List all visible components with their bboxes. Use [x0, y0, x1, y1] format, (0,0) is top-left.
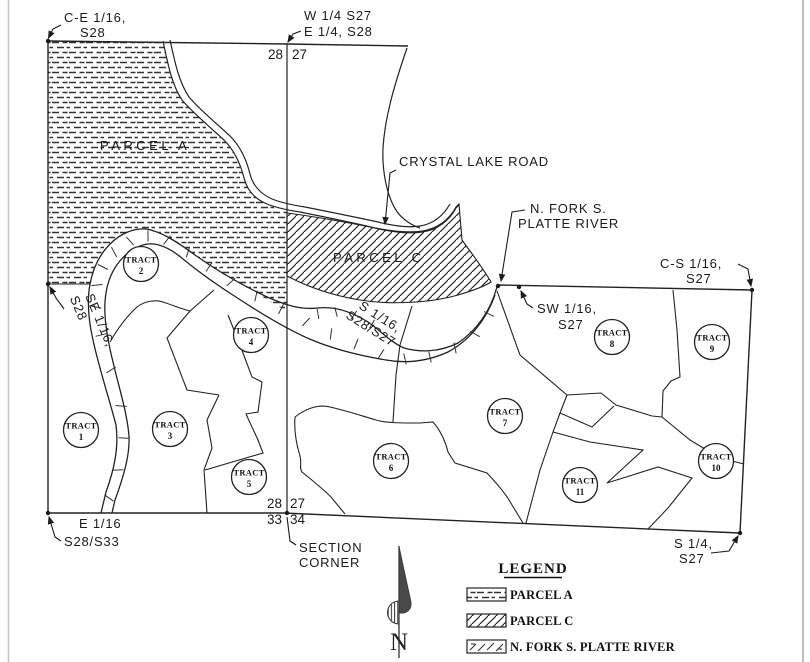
- parcel-fills: [48, 41, 491, 311]
- tract7-east-zigzag-upper: [567, 393, 662, 417]
- leader-ce16: [49, 25, 62, 38]
- legend-swatch-parcel-c: [467, 614, 506, 627]
- tract3-4-zigzag: [167, 311, 219, 395]
- tract-word: TRACT: [564, 476, 595, 486]
- leader-w14: [288, 31, 301, 42]
- label-se16-group: SE 1/16, S28: [67, 288, 118, 355]
- corner-dot-s14: [738, 531, 742, 535]
- tract-word: TRACT: [233, 468, 264, 478]
- label-parcel-c: PARCEL C: [333, 250, 425, 265]
- tract-word: TRACT: [235, 326, 266, 336]
- label-cs16-line1: C-S 1/16,: [660, 256, 722, 271]
- leader-s14: [711, 536, 738, 553]
- tract-number: 10: [712, 463, 722, 473]
- legend-title: LEGEND: [498, 561, 567, 577]
- corner-dot-e16: [46, 511, 50, 515]
- legend-label-river: N. FORK S. PLATTE RIVER: [510, 640, 676, 654]
- tract-number: 9: [710, 344, 715, 354]
- label-w14-line1: W 1/4 S27: [304, 8, 372, 23]
- leader-road: [385, 170, 396, 224]
- label-w14-line2: E 1/4, S28: [304, 24, 373, 39]
- plat-map-drawing: C-E 1/16, S28 W 1/4 S27 E 1/4, S28 28 27…: [0, 0, 810, 662]
- label-ce16-line1: C-E 1/16,: [64, 10, 126, 25]
- corner-dot-nw: [46, 39, 50, 43]
- tract-number: 6: [389, 463, 394, 473]
- label-crystal-lake-road: CRYSTAL LAKE ROAD: [399, 154, 549, 169]
- leader-sw16: [521, 291, 533, 308]
- north-arrow-disc: [388, 601, 400, 624]
- label-e16-line1: E 1/16: [79, 516, 121, 531]
- tract-boundaries: [110, 290, 744, 529]
- tract-marker-7: TRACT7: [488, 399, 523, 434]
- tract-marker-10: TRACT10: [699, 444, 734, 479]
- frame-right-line: [740, 290, 752, 533]
- north-label: N: [390, 629, 408, 656]
- corner-dot-section: [285, 511, 289, 515]
- tract-word: TRACT: [375, 452, 406, 462]
- label-se16-line1: SE 1/16,: [82, 291, 118, 349]
- tract-number: 11: [576, 487, 585, 497]
- tract-marker-9: TRACT9: [695, 325, 730, 360]
- legend-label-parcel-c: PARCEL C: [510, 614, 574, 628]
- leader-cs16: [738, 264, 751, 286]
- tract-marker-4: TRACT4: [234, 318, 269, 353]
- label-e16-line2: S28/S33: [64, 534, 119, 549]
- leader-se16: [50, 287, 64, 309]
- label-river-line2: PLATTE RIVER: [518, 216, 619, 231]
- tract-marker-2: TRACT2: [124, 247, 159, 282]
- tract11-north-link: [553, 432, 590, 442]
- tract-word: TRACT: [696, 333, 727, 343]
- label-s14-line1: S 1/4,: [674, 536, 713, 551]
- label-sc-34: 34: [290, 512, 306, 527]
- tract-word: TRACT: [125, 255, 156, 265]
- road-curve-upper: [383, 48, 420, 228]
- frame-bottom-right-line: [283, 513, 740, 533]
- label-top-sec-27: 27: [292, 47, 307, 62]
- tract-number: 8: [610, 339, 615, 349]
- label-parcel-a: PARCEL A: [100, 138, 190, 153]
- tract-word: TRACT: [65, 421, 96, 431]
- label-s14-line2: S27: [679, 551, 705, 566]
- tract-marker-3: TRACT3: [153, 412, 188, 447]
- label-ce16-line2: S28: [80, 25, 106, 40]
- tract8-9-divider: [662, 290, 680, 417]
- label-river-line1: N. FORK S.: [530, 201, 607, 216]
- corner-dot-se16: [46, 282, 50, 286]
- tract-marker-5: TRACT5: [232, 460, 267, 495]
- frame-east-top-line: [498, 285, 752, 290]
- tract2-south-boundary: [110, 290, 214, 342]
- label-sc-28: 28: [267, 496, 282, 511]
- label-section-corner-line1: SECTION: [299, 540, 362, 555]
- tract-number: 4: [249, 337, 254, 347]
- label-sw16-line1: SW 1/16,: [537, 301, 597, 316]
- survey-plat-page: C-E 1/16, S28 W 1/4 S27 E 1/4, S28 28 27…: [0, 0, 810, 662]
- label-sc-27: 27: [290, 496, 305, 511]
- tract-marker-1: TRACT1: [64, 413, 99, 448]
- tract-marker-8: TRACT8: [595, 320, 630, 355]
- legend-swatch-parcel-a: [467, 588, 506, 601]
- corner-dot-river: [496, 284, 500, 288]
- tract11-west-boundary: [526, 413, 560, 523]
- tract-marker-11: TRACT11: [563, 468, 598, 503]
- tract-number: 2: [139, 266, 144, 276]
- tract7-east-zigzag-lower: [560, 395, 614, 427]
- corner-dot-sw16: [517, 285, 521, 289]
- tract-number: 3: [168, 431, 173, 441]
- tract-number: 5: [247, 479, 252, 489]
- leader-e16: [49, 517, 61, 541]
- label-cs16-line2: S27: [686, 271, 712, 286]
- label-sc-33: 33: [267, 512, 282, 527]
- label-sw16-line2: S27: [558, 317, 584, 332]
- corner-dot-cs16: [750, 288, 754, 292]
- legend-label-parcel-a: PARCEL A: [510, 588, 573, 602]
- tract-word: TRACT: [700, 452, 731, 462]
- tract10-11-zigzag: [590, 442, 692, 529]
- legend: LEGEND PARCEL A PARCEL C N. FORK S. PLAT…: [467, 561, 676, 654]
- north-arrow-sail: [399, 546, 411, 613]
- tract3-5-divider: [204, 395, 219, 513]
- tract-number: 1: [79, 432, 84, 442]
- north-arrow: N: [388, 546, 412, 658]
- tract-marker-6: TRACT6: [374, 444, 409, 479]
- label-section-corner-line2: CORNER: [299, 555, 360, 570]
- tract-number: 7: [503, 418, 508, 428]
- tract-word: TRACT: [154, 420, 185, 430]
- tract-word: TRACT: [596, 328, 627, 338]
- label-top-sec-28: 28: [268, 47, 283, 62]
- tract-word: TRACT: [489, 407, 520, 417]
